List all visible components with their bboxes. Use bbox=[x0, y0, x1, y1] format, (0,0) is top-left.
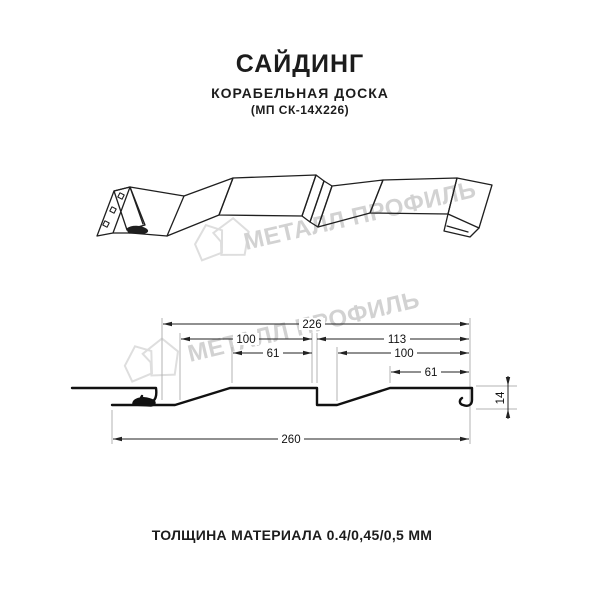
dim-module-right: 113 bbox=[388, 334, 406, 346]
nail-strip bbox=[97, 187, 130, 236]
material-thickness-note: ТОЛЩИНА МАТЕРИАЛА 0.4/0,45/0,5 ММ bbox=[0, 527, 584, 543]
dimension-lines bbox=[113, 324, 508, 439]
technical-drawing: МЕТАЛЛ ПРОФИЛЬ МЕТАЛЛ ПРОФИЛЬ bbox=[0, 0, 600, 600]
dim-plateau-right: 61 bbox=[425, 367, 438, 379]
dim-module-left: 100 bbox=[236, 334, 255, 346]
dim-overall-width: 226 bbox=[302, 319, 321, 331]
panel-cross-section bbox=[72, 388, 472, 406]
watermark-logo-icon bbox=[121, 336, 183, 385]
dim-plateau-left: 61 bbox=[267, 348, 280, 360]
dim-inner-right: 100 bbox=[394, 348, 413, 360]
spec-sheet: САЙДИНГ КОРАБЕЛЬНАЯ ДОСКА (МП СК-14Х226)… bbox=[0, 0, 600, 600]
dim-total-width: 260 bbox=[281, 434, 300, 446]
dim-height: 14 bbox=[495, 391, 507, 404]
main-profile bbox=[112, 388, 472, 406]
